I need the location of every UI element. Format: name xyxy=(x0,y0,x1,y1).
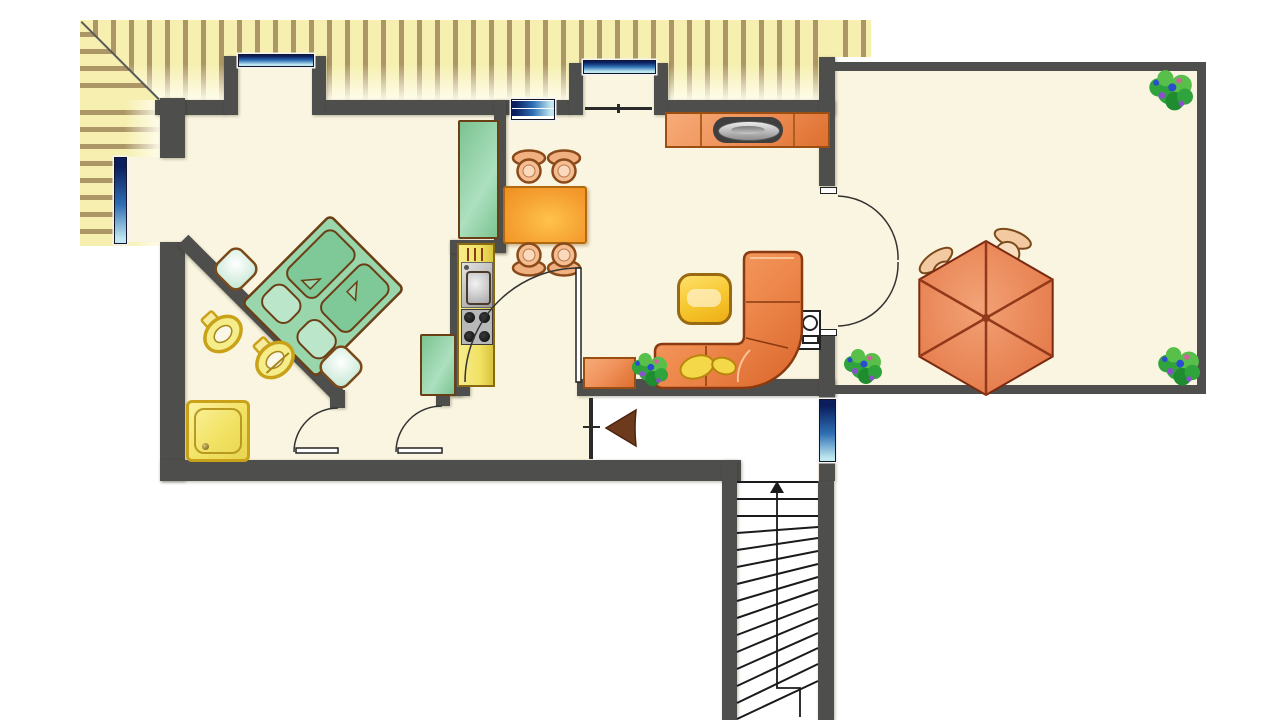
staircase xyxy=(737,482,818,719)
stair-walk-line xyxy=(777,492,800,717)
dining-stool xyxy=(513,151,545,183)
floor-plan xyxy=(0,0,1280,720)
symbols-overlay xyxy=(0,0,1280,720)
bathroom-door-arc xyxy=(294,408,338,452)
dining-stool xyxy=(513,244,545,276)
nightstand xyxy=(212,245,260,293)
plant xyxy=(1149,70,1193,110)
french-door-arc-bottom xyxy=(838,262,898,326)
toilet xyxy=(191,302,248,359)
dining-stool xyxy=(548,151,580,183)
plant xyxy=(844,349,882,384)
plant xyxy=(1158,347,1200,386)
french-door-arc-top xyxy=(838,196,898,260)
bedroom-door-arc xyxy=(396,406,442,452)
entrance-arrow xyxy=(606,410,636,446)
kitchen-door-leaf xyxy=(576,268,581,382)
bedroom-door-leaf xyxy=(398,448,442,453)
entrance-door xyxy=(589,398,593,459)
kitchen-door-arc xyxy=(465,268,579,382)
plant xyxy=(632,353,668,386)
bathroom-door-leaf xyxy=(296,448,338,453)
